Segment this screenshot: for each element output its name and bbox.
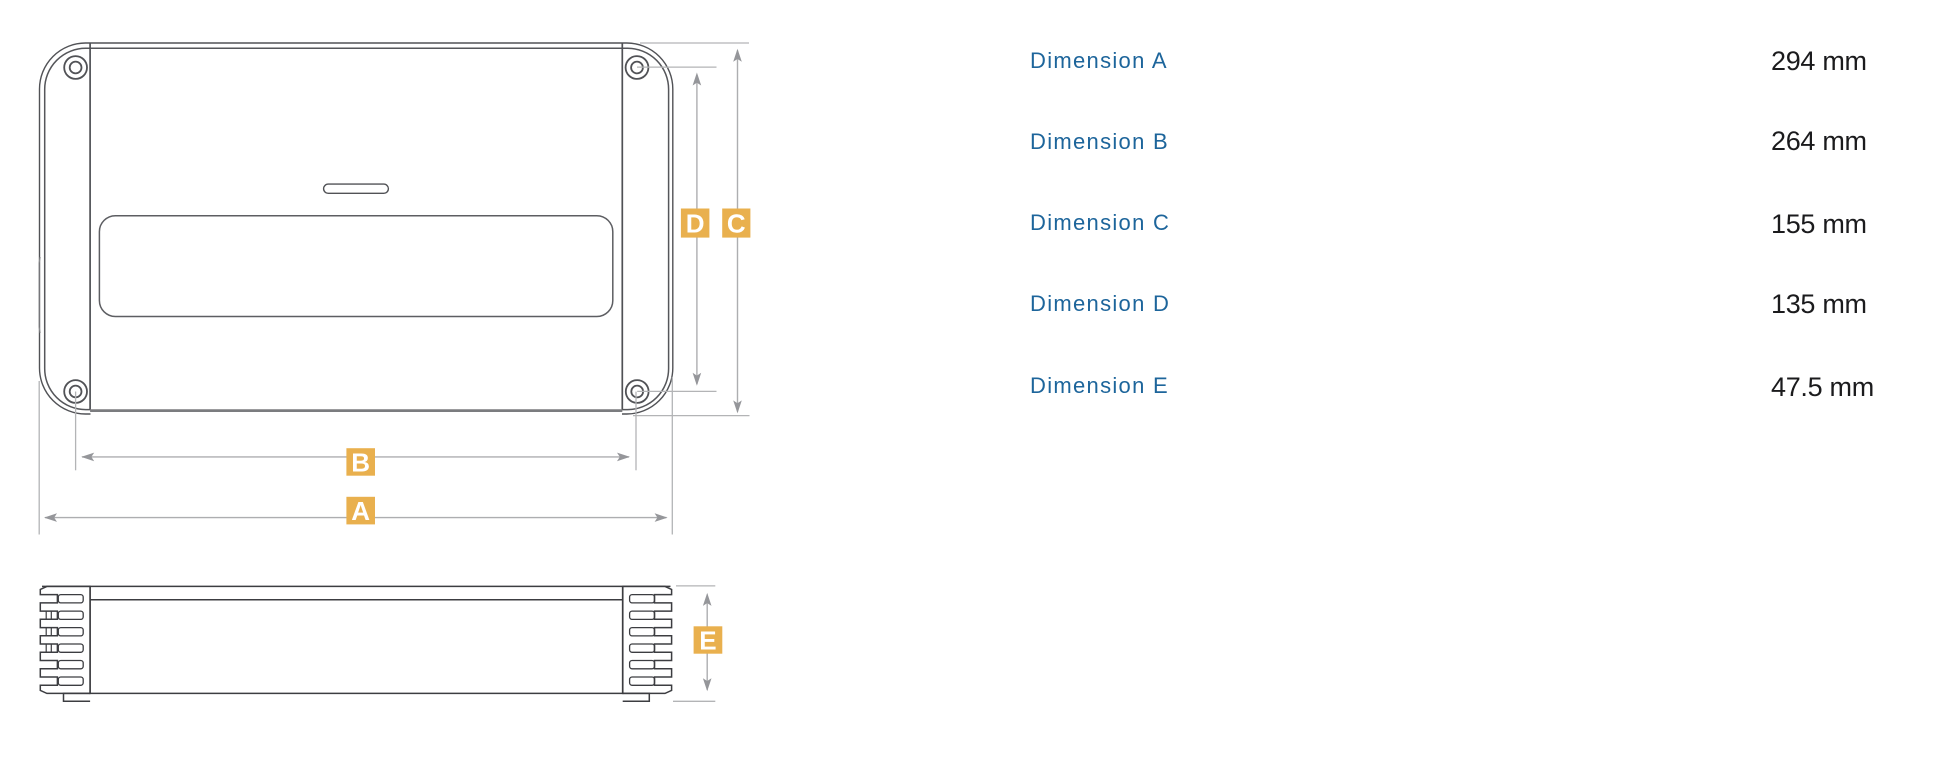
svg-text:D: D <box>686 208 705 238</box>
svg-text:E: E <box>699 625 716 655</box>
svg-text:A: A <box>351 496 370 526</box>
svg-text:C: C <box>727 208 746 238</box>
svg-text:B: B <box>351 447 370 477</box>
